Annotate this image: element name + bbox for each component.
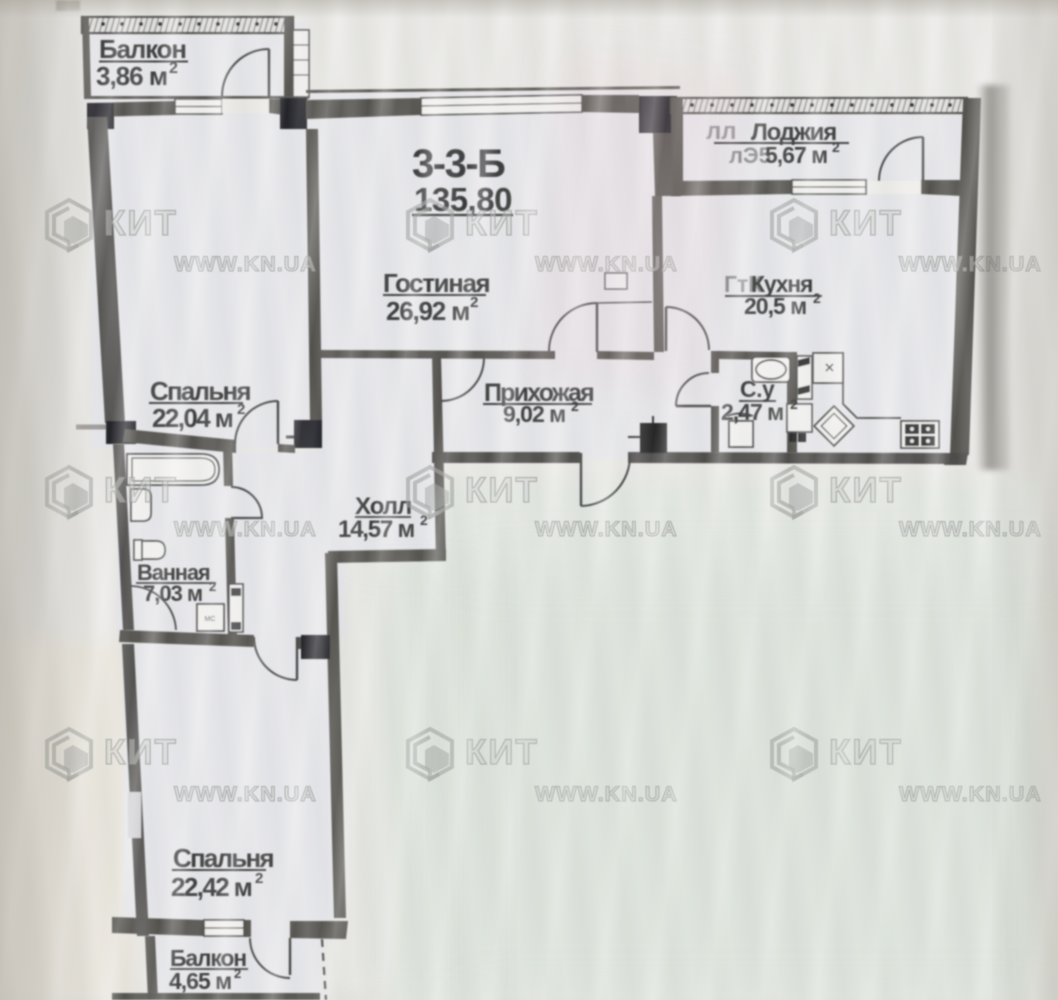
svg-text:КИТ: КИТ [104, 471, 178, 510]
svg-text:3-3-Б: 3-3-Б [412, 142, 505, 186]
svg-text:2: 2 [237, 401, 245, 418]
svg-text:22,04 м: 22,04 м [152, 403, 233, 433]
svg-text:2: 2 [255, 870, 263, 887]
svg-text:2: 2 [832, 139, 840, 155]
svg-text:WWW.KN.UA: WWW.KN.UA [535, 782, 678, 806]
svg-text:лл: лл [706, 118, 737, 145]
svg-text:WWW.KN.UA: WWW.KN.UA [899, 517, 1042, 541]
svg-text:22,42 м: 22,42 м [171, 872, 252, 902]
svg-text:2: 2 [234, 966, 241, 981]
svg-text:2: 2 [790, 396, 798, 412]
svg-text:WWW.KN.UA: WWW.KN.UA [535, 517, 678, 541]
svg-text:КИТ: КИТ [465, 471, 539, 510]
svg-text:МС: МС [205, 616, 216, 623]
svg-text:26,92 м: 26,92 м [386, 296, 469, 326]
svg-text:2: 2 [813, 290, 821, 306]
svg-text:WWW.KN.UA: WWW.KN.UA [174, 252, 317, 276]
svg-text:Спальня: Спальня [150, 376, 250, 406]
svg-text:Спальня: Спальня [173, 843, 273, 873]
svg-text:5,67 м: 5,67 м [765, 142, 827, 168]
svg-text:КИТ: КИТ [465, 204, 539, 243]
svg-text:20,5 м: 20,5 м [744, 293, 806, 319]
svg-text:КИТ: КИТ [104, 733, 178, 772]
svg-text:WWW.KN.UA: WWW.KN.UA [899, 782, 1042, 806]
svg-text:3,86 м: 3,86 м [96, 61, 167, 91]
svg-text:14,57 м: 14,57 м [338, 516, 415, 543]
svg-text:2: 2 [169, 60, 178, 77]
svg-text:2: 2 [209, 579, 216, 594]
svg-text:9,02 м: 9,02 м [503, 401, 565, 427]
svg-text:КИТ: КИТ [104, 204, 178, 243]
svg-text:4,65 м: 4,65 м [169, 968, 231, 994]
svg-text:КИТ: КИТ [829, 204, 903, 243]
svg-text:WWW.KN.UA: WWW.KN.UA [535, 252, 678, 276]
svg-text:КИТ: КИТ [829, 471, 903, 510]
svg-text:КИТ: КИТ [465, 733, 539, 772]
svg-text:2: 2 [571, 398, 579, 414]
svg-text:7,03 м: 7,03 м [143, 581, 202, 606]
svg-text:2,47 м: 2,47 м [721, 399, 783, 425]
svg-text:КИТ: КИТ [829, 733, 903, 772]
svg-text:WWW.KN.UA: WWW.KN.UA [899, 252, 1042, 276]
svg-text:WWW.KN.UA: WWW.KN.UA [174, 782, 317, 806]
svg-text:2: 2 [470, 294, 478, 311]
svg-text:WWW.KN.UA: WWW.KN.UA [174, 517, 317, 541]
